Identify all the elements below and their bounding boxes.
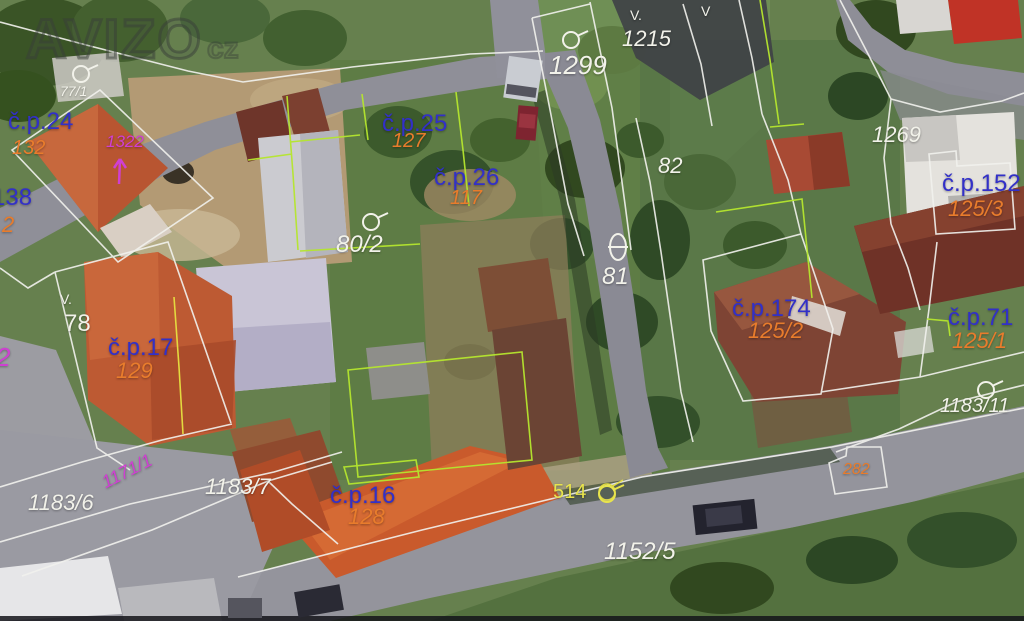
orchard-symbol-icon: [360, 208, 392, 238]
theta-symbol-icon: [606, 230, 630, 268]
arrow-symbol-icon: [110, 152, 128, 190]
orchard-symbol-icon: [560, 26, 592, 56]
conifer-symbol-icon: V.: [630, 8, 642, 22]
orchard-symbol-icon: [70, 60, 102, 90]
aerial-cadastral-map: AVIZOcz 77/1č.p.241321322138212991215821…: [0, 0, 1024, 621]
map-symbols-layer: V.V.V: [0, 0, 1024, 621]
orchard-symbol-icon: [975, 376, 1007, 406]
orchard-symbol-icon: [596, 480, 628, 510]
conifer-symbol-icon: V: [701, 4, 710, 18]
conifer-symbol-icon: V.: [60, 292, 72, 306]
